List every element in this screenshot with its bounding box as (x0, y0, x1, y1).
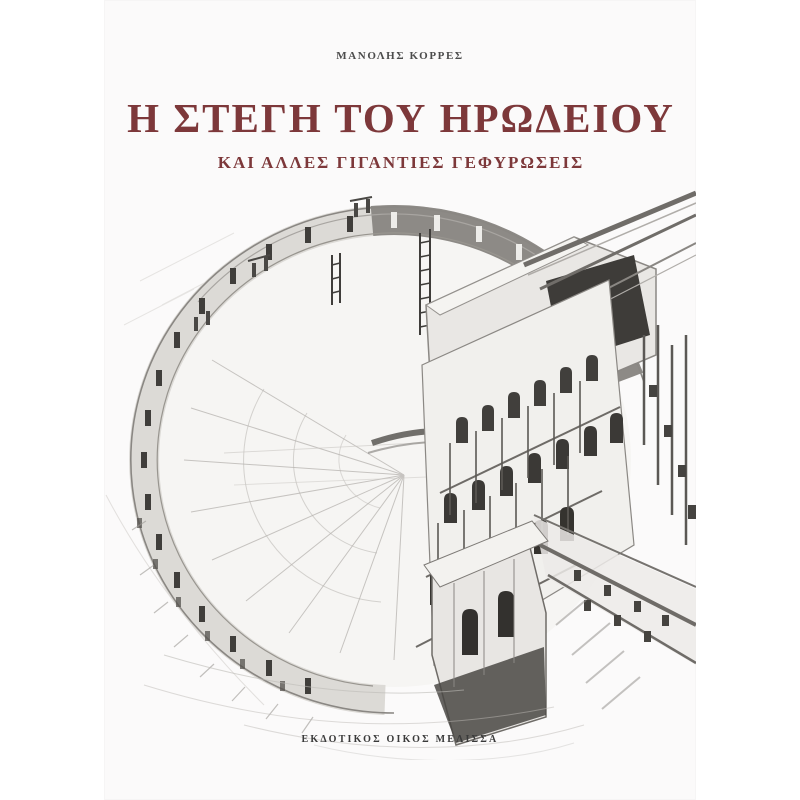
publisher-name: ΕΚΔΟΤΙΚΟΣ ΟΙΚΟΣ ΜΕΛΙΣΣΑ (104, 734, 696, 745)
book-cover-page: ΜΑΝΟΛΗΣ ΚΟΡΡΕΣ Η ΣΤΕΓΗ ΤΟΥ ΗΡΩΔΕΙΟΥ ΚΑΙ … (0, 0, 800, 800)
right-columns (644, 325, 696, 545)
odeon-engraving-illustration (104, 185, 696, 760)
book-cover: ΜΑΝΟΛΗΣ ΚΟΡΡΕΣ Η ΣΤΕΓΗ ΤΟΥ ΗΡΩΔΕΙΟΥ ΚΑΙ … (104, 0, 696, 800)
cover-illustration-area (104, 185, 696, 760)
book-title: Η ΣΤΕΓΗ ΤΟΥ ΗΡΩΔΕΙΟΥ (104, 96, 696, 141)
book-subtitle: ΚΑΙ ΑΛΛΕΣ ΓΙΓΑΝΤΙΕΣ ΓΕΦΥΡΩΣΕΙΣ (104, 153, 696, 173)
author-name: ΜΑΝΟΛΗΣ ΚΟΡΡΕΣ (104, 50, 696, 62)
